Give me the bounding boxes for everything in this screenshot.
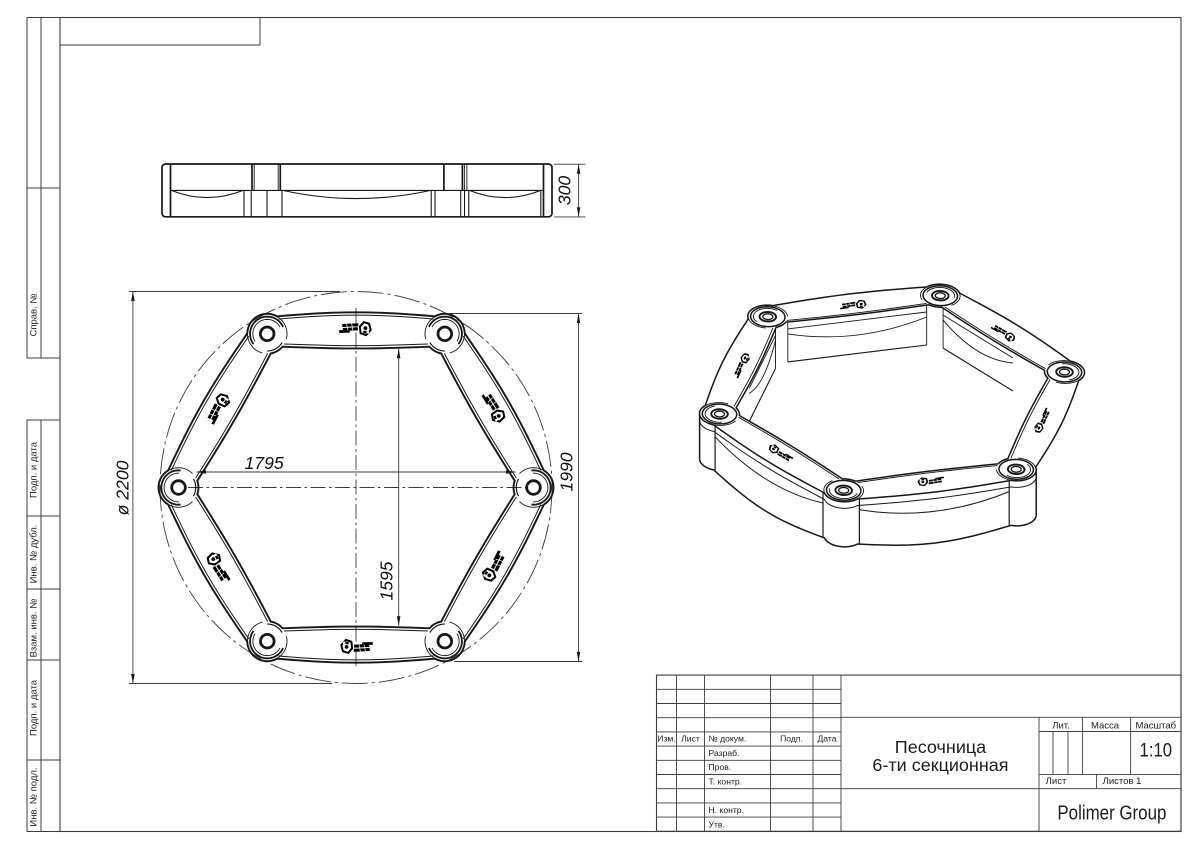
svg-text:Подп. и дата: Подп. и дата — [29, 679, 40, 736]
svg-text:1795: 1795 — [245, 453, 284, 473]
svg-text:1990: 1990 — [557, 452, 577, 491]
svg-text:Лит.: Лит. — [1052, 720, 1069, 731]
svg-text:ø 2200: ø 2200 — [113, 460, 133, 515]
svg-text:1:10: 1:10 — [1140, 740, 1173, 762]
svg-text:Масштаб: Масштаб — [1135, 720, 1176, 731]
svg-text:Пров.: Пров. — [709, 762, 732, 772]
svg-text:Н. контр.: Н. контр. — [709, 805, 744, 815]
svg-text:1595: 1595 — [377, 561, 397, 600]
svg-text:Разраб.: Разраб. — [709, 748, 740, 758]
svg-text:Лист: Лист — [681, 734, 700, 744]
svg-text:Изм.: Изм. — [657, 734, 675, 744]
svg-text:Подп.: Подп. — [780, 734, 803, 744]
svg-text:Утв.: Утв. — [709, 819, 725, 829]
svg-text:Листов 1: Листов 1 — [1103, 776, 1142, 787]
svg-text:Лист: Лист — [1046, 776, 1067, 787]
svg-text:Инв. № дубл.: Инв. № дубл. — [29, 525, 40, 584]
svg-text:6-ти секционная: 6-ти секционная — [872, 755, 1008, 775]
svg-text:Polimer Group: Polimer Group — [1057, 801, 1166, 824]
svg-text:Инв. № подл.: Инв. № подл. — [29, 767, 40, 826]
svg-text:Т. контр.: Т. контр. — [709, 776, 743, 786]
svg-text:300: 300 — [555, 176, 575, 206]
svg-text:Взам. инв. №: Взам. инв. № — [29, 599, 40, 658]
svg-text:Дата: Дата — [817, 734, 836, 744]
svg-text:Подп. и дата: Подп. и дата — [29, 441, 40, 498]
svg-text:Справ. №: Справ. № — [29, 293, 40, 336]
svg-text:Масса: Масса — [1091, 720, 1120, 731]
svg-text:№ докум.: № докум. — [709, 734, 747, 744]
svg-text:Песочница: Песочница — [895, 737, 987, 757]
